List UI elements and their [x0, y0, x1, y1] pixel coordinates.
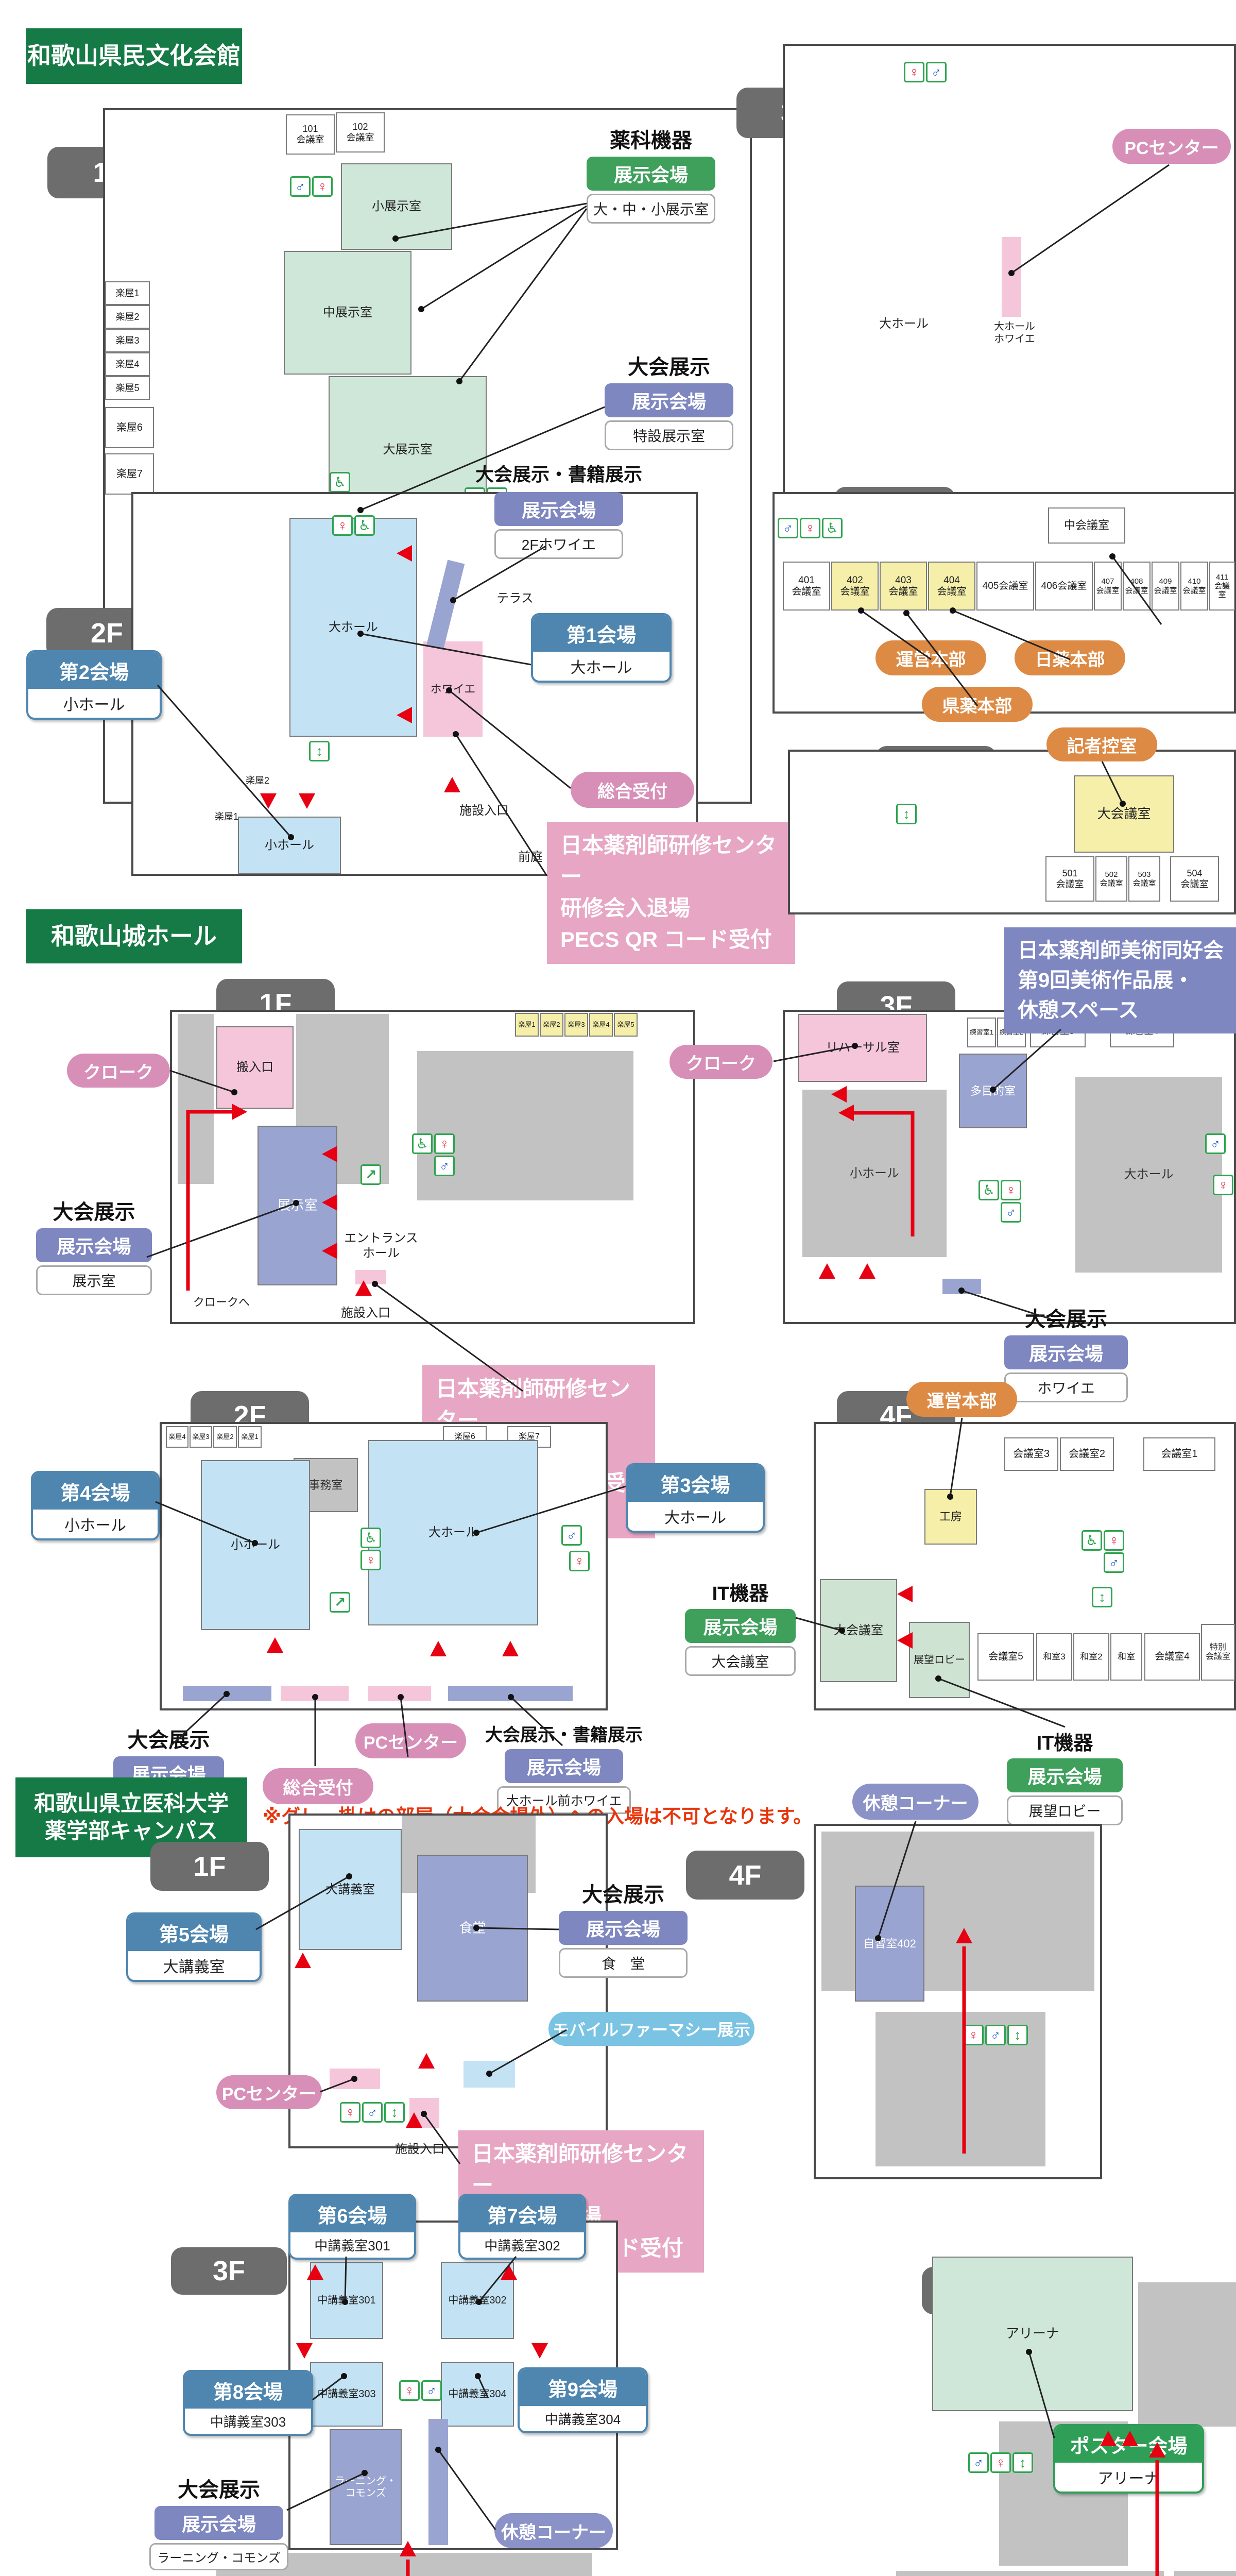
- route-arrow-up: [1122, 2431, 1138, 2446]
- room: 楽屋7: [105, 453, 154, 495]
- room: 会議室3: [1004, 1437, 1058, 1471]
- route-arrow-down: [296, 2343, 313, 2359]
- rest-corner-label: 休憩コーナー: [852, 1784, 978, 1820]
- callout-venue-6: 第6会場 中講義室301: [288, 2194, 416, 2260]
- route-arrow-right: [232, 1104, 247, 1120]
- room: 504 会議室: [1170, 856, 1219, 902]
- area-label: エントランス ホール: [337, 1231, 425, 1261]
- reception-strip: [281, 1686, 349, 1701]
- reception-label: 総合受付: [263, 1768, 373, 1804]
- elevator-icon: ↕: [391, 2105, 398, 2121]
- venue-room: 中講義室303: [185, 2409, 311, 2434]
- room: 楽屋5: [614, 1013, 638, 1037]
- pc-strip: [368, 1686, 431, 1701]
- callout-venue-2: 第2会場 小ホール: [26, 650, 162, 720]
- exhibit-hall-bar: 展示会場: [505, 1749, 623, 1783]
- room: 102 会議室: [336, 112, 385, 152]
- pecs-reception-box: 日本薬剤師研修センター 研修会入退場 PECS QR コード受付: [547, 822, 795, 964]
- womens-toilet-icon: ♀: [1109, 1533, 1119, 1549]
- hq-label-kenyaku: 県薬本部: [922, 687, 1033, 722]
- mens-toilet-icon: ♂: [783, 520, 793, 536]
- page: { "colors":{"header_green":"#157a45","fl…: [0, 0, 1236, 2576]
- exhibit-hall-bar: 展示会場: [559, 1911, 688, 1945]
- route-arrow-up: [444, 777, 460, 792]
- route-arrow-up: [406, 2112, 422, 2128]
- venue-room: 中講義室302: [460, 2232, 584, 2258]
- venue-name: 第3会場: [628, 1465, 763, 1502]
- wheelchair-icon: ♿: [826, 520, 838, 536]
- off-limit-area: [1138, 2282, 1236, 2427]
- venue-name: 第7会場: [460, 2196, 584, 2232]
- press-room-label: 記者控室: [1046, 727, 1157, 761]
- route-arrow-up: [295, 1953, 311, 1968]
- venue-room: 小ホール: [28, 689, 160, 718]
- room-rest: 自習室402: [855, 1886, 924, 2002]
- callout-venue-8: 第8会場 中講義室303: [183, 2370, 313, 2436]
- mens-toilet-icon: ♂: [1210, 1136, 1221, 1152]
- floor-badge-idai-3f: 3F: [171, 2247, 287, 2295]
- room-hq: 工房: [924, 1489, 977, 1545]
- room-cloak: リハーサル室: [798, 1014, 927, 1082]
- exhibit-hall-sub: 大・中・小展示室: [587, 194, 715, 224]
- room: 楽屋3: [105, 329, 150, 352]
- room: 楽屋3: [190, 1426, 212, 1448]
- rest-corner-strip: [428, 2419, 448, 2545]
- room-exhibit: ラーニング・コモンズ: [330, 2429, 402, 2545]
- venue-name: 第8会場: [185, 2372, 311, 2409]
- callout-title: 大会展示・書籍展示: [479, 1721, 649, 1746]
- room-exhibit: 小展示室: [341, 163, 452, 250]
- callout-it-exhibit: IT機器 展示会場 大会議室: [685, 1578, 796, 1676]
- wheelchair-icon: ♿: [416, 1136, 428, 1152]
- elevator-icon: ↕: [1014, 2027, 1021, 2043]
- wheelchair-icon: ♿: [365, 1530, 377, 1546]
- callout-venue-5: 第5会場 大講義室: [126, 1912, 262, 1982]
- wheelchair-icon: ♿: [358, 518, 371, 534]
- mens-toilet-icon: ♂: [990, 2027, 1001, 2043]
- off-limit-area: [417, 1051, 633, 1200]
- route-arrow-up: [1100, 2431, 1117, 2446]
- womens-toilet-icon: ♀: [404, 2383, 415, 2399]
- route-arrow-left: [397, 545, 412, 562]
- route-arrow-up: [418, 2053, 435, 2069]
- womens-toilet-icon: ♀: [1218, 1177, 1228, 1193]
- callout-title: 大会展示: [149, 2473, 288, 2503]
- mens-toilet-icon: ♂: [973, 2455, 984, 2471]
- callout-title: 大会展示・書籍展示: [474, 460, 644, 486]
- womens-toilet-icon: ♀: [345, 2105, 355, 2121]
- venue-room: アリーナ: [1055, 2463, 1202, 2492]
- route-arrow-left: [397, 707, 412, 723]
- womens-toilet-icon: ♀: [805, 520, 815, 536]
- mobile-pharmacy-label: モバイルファーマシー展示: [548, 2012, 754, 2046]
- room: 501 会議室: [1045, 856, 1094, 902]
- mens-toilet-icon: ♂: [566, 1528, 577, 1544]
- route-arrow-left: [838, 1105, 854, 1121]
- hall-label: 大ホール: [870, 317, 937, 332]
- escalator-icon: ↗: [334, 1595, 346, 1611]
- room: 503 会議室: [1128, 856, 1160, 902]
- exhibit-hall-bar: 展示会場: [494, 492, 623, 526]
- exhibit-hall-bar: 展示会場: [605, 383, 733, 417]
- callout-book-exhibit-bars: 展示会場 2Fホワイエ: [494, 492, 623, 559]
- route-arrow-left: [322, 1146, 337, 1162]
- mens-toilet-icon: ♂: [426, 2383, 437, 2399]
- reception-label: 総合受付: [571, 772, 694, 808]
- room-hall: 小ホール: [238, 817, 341, 874]
- exhibit-hall-sub: 2Fホワイエ: [494, 529, 623, 559]
- room: 楽屋1: [105, 281, 150, 305]
- room: 楽屋6: [105, 407, 154, 448]
- room-it-exhibit: 展望ロビー: [909, 1622, 970, 1698]
- exhibit-hall-sub: 展望ロビー: [1007, 1795, 1123, 1825]
- room-venue: 中講義室303: [310, 2362, 383, 2427]
- venue-name: 第4会場: [33, 1473, 158, 1510]
- room-poster-arena: アリーナ: [932, 2257, 1133, 2411]
- route-arrow-up: [501, 2264, 517, 2280]
- mens-toilet-icon: ♂: [931, 64, 941, 80]
- exhibit-strip: [942, 1279, 981, 1294]
- callout-venue-9: 第9会場 中講義室304: [518, 2367, 648, 2433]
- cloak-label: クローク: [669, 1045, 772, 1079]
- callout-it-exhibit: IT機器 展示会場 展望ロビー: [1007, 1727, 1123, 1825]
- room-venue: 中講義室304: [441, 2362, 514, 2427]
- elevator-icon: ↕: [903, 806, 910, 822]
- route-arrow-up: [956, 1928, 972, 1943]
- route-arrow-up: [267, 1637, 283, 1653]
- womens-toilet-icon: ♀: [337, 518, 348, 534]
- room: 楽屋1: [515, 1013, 539, 1037]
- pc-center-label: PCセンター: [1112, 129, 1231, 164]
- hq-label-nichiyaku: 日薬本部: [1015, 640, 1125, 675]
- off-limit-area: [896, 2571, 1164, 2576]
- room-hq: 402 会議室: [831, 562, 879, 611]
- section-header-johall: 和歌山城ホール: [26, 909, 242, 963]
- room-exhibit: 食堂: [417, 1855, 528, 2002]
- callout-title: 薬科機器: [587, 124, 715, 154]
- foyer-area: ホワイエ: [423, 641, 483, 737]
- venue-name: 第1会場: [533, 615, 669, 652]
- exhibit-hall-bar: 展示会場: [1004, 1335, 1128, 1369]
- route-arrow-up: [400, 2541, 416, 2556]
- room: 中会議室: [1048, 507, 1125, 544]
- callout-title: 大会展示: [1004, 1302, 1128, 1332]
- exhibit-hall-bar: 展示会場: [685, 1609, 796, 1643]
- mens-toilet-icon: ♂: [1109, 1555, 1119, 1571]
- room-hq: 403 会議室: [880, 562, 927, 611]
- room: 和室2: [1073, 1633, 1109, 1681]
- room-press: 大会議室: [1074, 775, 1174, 853]
- off-limit-area: [178, 1014, 214, 1184]
- route-arrow-up: [859, 1263, 875, 1279]
- callout-book-exhibit: 大会展示・書籍展示: [474, 460, 644, 489]
- wheelchair-icon: ♿: [334, 474, 346, 490]
- exhibit-hall-bar: 展示会場: [36, 1228, 152, 1262]
- womens-toilet-icon: ♀: [995, 2455, 1006, 2471]
- floor-badge-idai-1f: 1F: [150, 1842, 269, 1891]
- womens-toilet-icon: ♀: [1006, 1182, 1016, 1198]
- room-exhibit: 中展示室: [284, 251, 411, 375]
- room: 会議室5: [977, 1633, 1034, 1681]
- mens-toilet-icon: ♂: [295, 179, 305, 195]
- room: 特別 会議室: [1201, 1624, 1235, 1681]
- room: 会議室2: [1060, 1437, 1114, 1471]
- room: 408 会議室: [1123, 562, 1151, 611]
- room: 和室: [1110, 1633, 1142, 1681]
- room: 楽屋4: [589, 1013, 613, 1037]
- pc-strip: [330, 2069, 380, 2089]
- room: 楽屋5: [105, 376, 150, 400]
- rest-corner-label: 休憩コーナー: [494, 2513, 613, 2548]
- callout-title: 大会展示: [559, 1878, 688, 1908]
- room: 410 会議室: [1180, 562, 1208, 611]
- exhibit-hall-sub: 食 堂: [559, 1948, 688, 1978]
- venue-name: 第2会場: [28, 652, 160, 689]
- exhibit-hall-bar: 展示会場: [1007, 1758, 1123, 1792]
- callout-title: 大会展示: [605, 350, 733, 380]
- room: 411 会議室: [1209, 562, 1235, 611]
- art-exhibit-box: 日本薬剤師美術同好会 第9回美術作品展・ 休憩スペース: [1004, 927, 1236, 1033]
- room: 楽屋1: [238, 1426, 262, 1448]
- hq-label-unei: 運営本部: [906, 1382, 1017, 1417]
- route-arrow-up: [430, 1641, 447, 1656]
- venue-room: 大ホール: [628, 1502, 763, 1531]
- venue-room: 中講義室304: [520, 2406, 646, 2431]
- room-hall: 小ホール: [201, 1460, 310, 1630]
- womens-toilet-icon: ♀: [317, 179, 328, 195]
- mens-toilet-icon: ♂: [439, 1158, 450, 1174]
- callout-book-exhibit: 大会展示・書籍展示 展示会場 大ホール前ホワイエ: [479, 1721, 649, 1814]
- womens-toilet-icon: ♀: [366, 1552, 376, 1568]
- entrance-label: 施設入口: [330, 1306, 402, 1321]
- elevator-icon: ↕: [1019, 2455, 1026, 2471]
- mobile-pharmacy-area: [463, 2061, 515, 2088]
- off-limit-area: [1174, 2571, 1236, 2576]
- callout-title: 大会展示: [100, 1723, 237, 1753]
- venue-name: 第9会場: [520, 2369, 646, 2406]
- route-arrow-left: [897, 1632, 913, 1649]
- exhibit-hall-sub: 特設展示室: [605, 420, 733, 450]
- entrance-label: 施設入口: [448, 804, 520, 819]
- callout-venue-3: 第3会場 大ホール: [626, 1463, 765, 1533]
- route-arrow-down: [531, 2343, 548, 2359]
- route-arrow-up: [307, 2264, 323, 2280]
- escalator-icon: ↗: [365, 1167, 377, 1183]
- room: 502 会議室: [1095, 856, 1127, 902]
- venue-room: 小ホール: [33, 1510, 158, 1538]
- room: 楽屋3: [564, 1013, 588, 1037]
- room: 会議室4: [1144, 1633, 1200, 1681]
- room-it-exhibit: 大会議室: [820, 1579, 897, 1682]
- route-arrow-up: [1149, 2442, 1165, 2458]
- room: 407 会議室: [1094, 562, 1122, 611]
- hq-label-unei: 運営本部: [875, 640, 986, 675]
- callout-title: IT機器: [1007, 1727, 1123, 1755]
- route-arrow-left: [322, 1194, 337, 1211]
- exhibit-strip: [183, 1686, 271, 1701]
- elevator-icon: ↕: [1098, 1589, 1106, 1605]
- womens-toilet-icon: ♀: [574, 1553, 585, 1569]
- exhibit-hall-sub: ラーニング・コモンズ: [149, 2543, 288, 2570]
- area-label: テラス: [487, 591, 543, 606]
- room: 楽屋4: [105, 352, 150, 376]
- venue-name: 第6会場: [290, 2196, 414, 2232]
- room: 楽屋4: [166, 1426, 188, 1448]
- route-label: クロークへ: [180, 1296, 263, 1309]
- room-hall: 小ホール: [802, 1090, 947, 1257]
- room: 会議室1: [1143, 1437, 1215, 1471]
- room-label: 楽屋1: [203, 811, 250, 823]
- callout-taikai-exhibit: 大会展示 展示会場 ラーニング・コモンズ: [149, 2473, 288, 2570]
- venue-room: 大講義室: [128, 1951, 260, 1980]
- route-arrow-up: [819, 1263, 835, 1279]
- room-label: 楽屋2: [234, 775, 281, 787]
- room: 和室3: [1036, 1633, 1072, 1681]
- floor-badge-idai-4f: 4F: [686, 1851, 804, 1900]
- room-venue: 大講義室: [299, 1829, 402, 1950]
- venue-room: 中講義室301: [290, 2232, 414, 2258]
- route-arrow-left: [322, 1243, 337, 1259]
- route-arrow-up: [355, 1280, 372, 1296]
- room-loading: 搬入口: [216, 1026, 294, 1109]
- mens-toilet-icon: ♂: [367, 2105, 377, 2121]
- callout-title: IT機器: [685, 1578, 796, 1606]
- route-arrow-down: [299, 793, 315, 809]
- callout-taikai-exhibit: 大会展示 展示会場 展示室: [36, 1195, 152, 1295]
- womens-toilet-icon: ♀: [439, 1136, 450, 1152]
- entrance-label: 施設入口: [384, 2142, 456, 2157]
- exhibit-hall-sub: ホワイエ: [1004, 1372, 1128, 1402]
- callout-venue-4: 第4会場 小ホール: [31, 1471, 160, 1540]
- exhibit-hall-sub: 大会議室: [685, 1646, 796, 1676]
- callout-taikai-exhibit: 大会展示 展示会場 特設展示室: [605, 350, 733, 450]
- callout-kiki-exhibit: 薬科機器 展示会場 大・中・小展示室: [587, 124, 715, 224]
- room: 406会議室: [1035, 562, 1093, 611]
- cloak-label: クローク: [67, 1054, 170, 1088]
- room: 405会議室: [976, 562, 1034, 611]
- room-rest: 多目的室: [959, 1054, 1027, 1128]
- callout-taikai-exhibit: 大会展示 展示会場 ホワイエ: [1004, 1302, 1128, 1402]
- section-header-kenmin: 和歌山県民文化会館: [26, 28, 242, 84]
- elevator-icon: ↕: [316, 743, 323, 759]
- room: 401 会議室: [783, 562, 830, 611]
- exhibit-strip: [448, 1686, 573, 1701]
- pc-center-label: PCセンター: [216, 2075, 322, 2109]
- room: 楽屋2: [213, 1426, 237, 1448]
- route-arrow-left: [897, 1586, 913, 1602]
- route-arrow-left: [831, 1086, 847, 1103]
- venue-name: 第5会場: [128, 1914, 260, 1951]
- room: 練習室1: [967, 1018, 996, 1047]
- callout-title: 大会展示: [36, 1195, 152, 1225]
- room-hq: 404 会議室: [928, 562, 975, 611]
- area-label: 大ホール ホワイエ: [981, 320, 1048, 345]
- pc-center-area: [1002, 237, 1021, 317]
- route-arrow-down: [260, 793, 277, 809]
- exhibit-hall-bar: 展示会場: [154, 2506, 283, 2540]
- route-arrow-up: [502, 1641, 519, 1656]
- mens-toilet-icon: ♂: [1006, 1205, 1016, 1221]
- room-hall: 大ホール: [368, 1440, 538, 1625]
- pc-center-label: PCセンター: [355, 1723, 466, 1758]
- wheelchair-icon: ♿: [983, 1182, 995, 1198]
- exhibit-hall-bar: 展示会場: [587, 157, 715, 191]
- womens-toilet-icon: ♀: [909, 64, 919, 80]
- callout-taikai-exhibit: 大会展示 展示会場 食 堂: [559, 1878, 688, 1978]
- callout-venue-7: 第7会場 中講義室302: [458, 2194, 586, 2260]
- room: 楽屋2: [105, 305, 150, 329]
- room-hall: 大ホール: [1075, 1077, 1222, 1273]
- callout-venue-1: 第1会場 大ホール: [531, 613, 672, 683]
- exhibit-hall-sub: 展示室: [36, 1265, 152, 1295]
- womens-toilet-icon: ♀: [968, 2027, 978, 2043]
- room: 楽屋2: [540, 1013, 563, 1037]
- room: 409 会議室: [1152, 562, 1179, 611]
- room: 101 会議室: [286, 114, 335, 155]
- venue-room: 大ホール: [533, 652, 669, 681]
- wheelchair-icon: ♿: [1086, 1533, 1098, 1549]
